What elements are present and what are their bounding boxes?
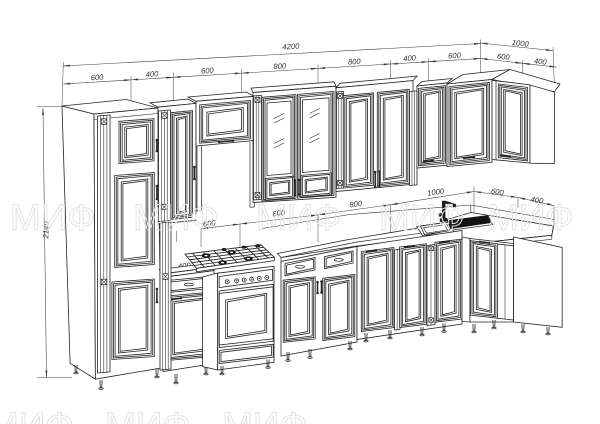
svg-text:600: 600 <box>201 66 215 76</box>
svg-text:400: 400 <box>533 56 547 67</box>
svg-text:600: 600 <box>490 186 505 197</box>
svg-text:МИФ: МИФ <box>222 405 308 424</box>
svg-text:400: 400 <box>145 69 159 79</box>
svg-text:800: 800 <box>273 61 287 71</box>
svg-text:4200: 4200 <box>282 42 300 52</box>
svg-text:МИФ: МИФ <box>10 197 96 238</box>
svg-text:МИФ: МИФ <box>0 405 74 424</box>
svg-text:МИФ: МИФ <box>133 197 219 238</box>
svg-text:МИФ: МИФ <box>256 197 342 238</box>
svg-text:800: 800 <box>349 199 363 210</box>
svg-text:600: 600 <box>90 72 104 82</box>
svg-text:МИФ: МИФ <box>379 197 465 238</box>
svg-text:400: 400 <box>403 53 417 63</box>
svg-text:МИФ: МИФ <box>105 405 191 424</box>
svg-text:600: 600 <box>448 51 462 61</box>
svg-text:МИФ: МИФ <box>488 197 574 238</box>
svg-text:600: 600 <box>496 52 510 62</box>
svg-text:800: 800 <box>348 57 362 67</box>
